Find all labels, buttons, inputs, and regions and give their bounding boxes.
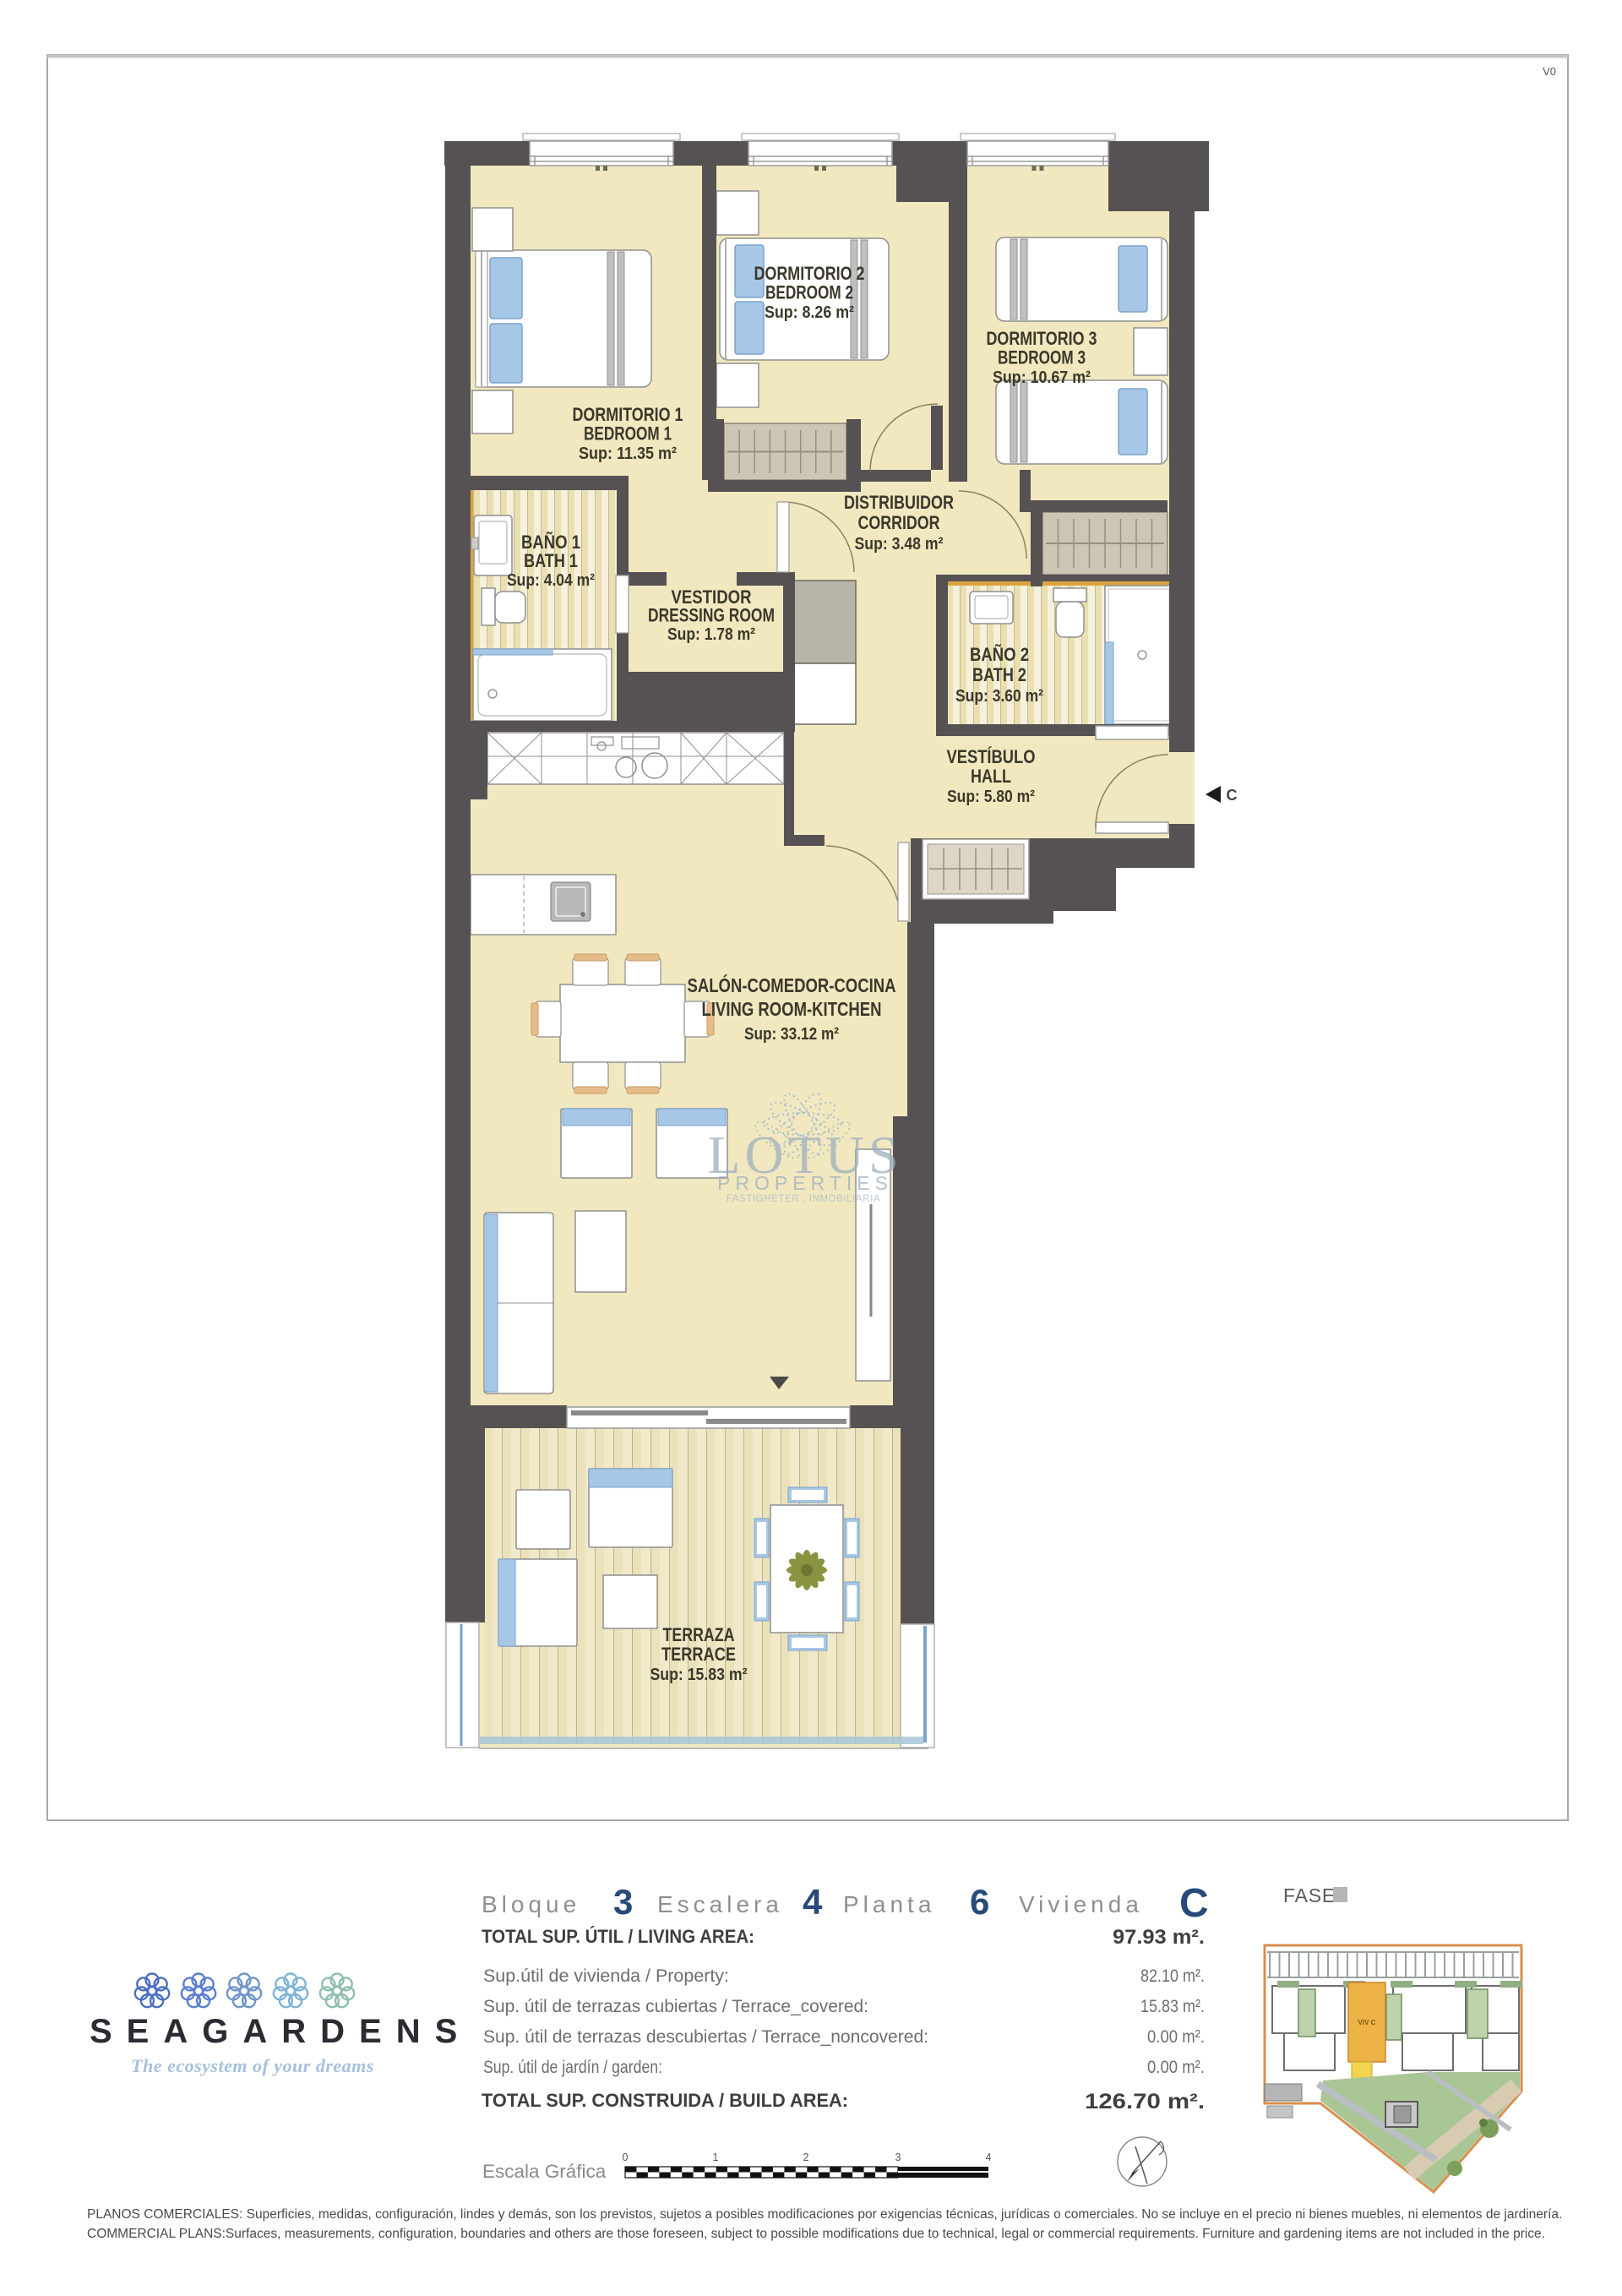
svg-text:0.00 m².: 0.00 m².	[1147, 2058, 1205, 2077]
svg-text:TOTAL SUP. CONSTRUIDA / BUILD: TOTAL SUP. CONSTRUIDA / BUILD AREA:	[482, 2090, 848, 2111]
svg-text:Sup: 33.12 m²: Sup: 33.12 m²	[744, 1025, 839, 1044]
svg-text:3: 3	[613, 1882, 633, 1922]
svg-text:126.70 m².: 126.70 m².	[1085, 2090, 1205, 2113]
svg-text:Sup. útil de jardín / garden:: Sup. útil de jardín / garden:	[483, 2058, 662, 2077]
svg-text:BATH 1: BATH 1	[524, 550, 578, 571]
svg-text:Sup: 15.83 m²: Sup: 15.83 m²	[650, 1666, 748, 1684]
svg-text:C: C	[1227, 787, 1238, 804]
svg-text:Escala Gráfica: Escala Gráfica	[482, 2161, 607, 2182]
svg-text:VIV C: VIV C	[1358, 2019, 1376, 2026]
svg-text:DISTRIBUIDOR: DISTRIBUIDOR	[844, 492, 954, 513]
svg-text:BEDROOM 1: BEDROOM 1	[584, 423, 672, 444]
svg-text:DORMITORIO 1: DORMITORIO 1	[573, 404, 683, 425]
svg-text:TERRAZA: TERRAZA	[663, 1624, 735, 1645]
svg-text:LIVING ROOM-KITCHEN: LIVING ROOM-KITCHEN	[702, 998, 882, 1020]
svg-text:1: 1	[713, 2151, 719, 2163]
svg-text:BATH 2: BATH 2	[972, 664, 1026, 685]
svg-text:PROPERTIES: PROPERTIES	[717, 1172, 893, 1194]
svg-text:DORMITORIO 3: DORMITORIO 3	[987, 328, 1097, 349]
svg-text:CORRIDOR: CORRIDOR	[858, 512, 940, 533]
svg-text:Sup. útil de terrazas cubierta: Sup. útil de terrazas cubiertas / Terrac…	[483, 1997, 868, 2016]
svg-text:TERRACE: TERRACE	[661, 1644, 736, 1665]
svg-text:FASTIGHETER : INMOBILIARIA: FASTIGHETER : INMOBILIARIA	[727, 1194, 880, 1204]
svg-text:VESTÍBULO: VESTÍBULO	[947, 746, 1036, 767]
svg-text:PLANOS COMERCIALES: Superficie: PLANOS COMERCIALES: Superficies, medidas…	[87, 2207, 1562, 2222]
svg-text:SEAGARDENS: SEAGARDENS	[90, 2013, 471, 2050]
svg-text:15.83 m².: 15.83 m².	[1140, 1997, 1205, 2016]
svg-text:Planta: Planta	[843, 1891, 935, 1917]
svg-text:BAÑO 2: BAÑO 2	[970, 644, 1029, 665]
svg-text:C: C	[1179, 1881, 1209, 1926]
svg-text:Sup: 8.26 m²: Sup: 8.26 m²	[765, 303, 854, 322]
svg-text:2: 2	[803, 2151, 809, 2163]
svg-text:3: 3	[895, 2151, 901, 2163]
svg-text:Vivienda: Vivienda	[1019, 1891, 1143, 1917]
svg-text:97.93 m².: 97.93 m².	[1113, 1926, 1205, 1949]
svg-text:0.00 m².: 0.00 m².	[1147, 2027, 1205, 2047]
svg-text:Sup: 10.67 m²: Sup: 10.67 m²	[993, 368, 1091, 387]
svg-text:Sup: 4.04 m²: Sup: 4.04 m²	[507, 571, 595, 590]
svg-text:Sup. útil de terrazas descubie: Sup. útil de terrazas descubiertas / Ter…	[483, 2027, 928, 2047]
svg-text:The ecosystem of your dreams: The ecosystem of your dreams	[131, 2055, 374, 2076]
svg-text:Sup: 3.48 m²: Sup: 3.48 m²	[855, 535, 944, 554]
svg-text:0: 0	[623, 2151, 629, 2163]
svg-text:Escalera: Escalera	[657, 1891, 783, 1917]
svg-text:DORMITORIO 2: DORMITORIO 2	[754, 263, 865, 284]
svg-text:COMMERCIAL PLANS:Surfaces, mea: COMMERCIAL PLANS:Surfaces, measurements,…	[87, 2227, 1545, 2241]
svg-text:TOTAL SUP. ÚTIL / LIVING AREA:: TOTAL SUP. ÚTIL / LIVING AREA:	[482, 1926, 754, 1947]
svg-text:BEDROOM 3: BEDROOM 3	[998, 347, 1086, 368]
svg-text:Sup: 3.60 m²: Sup: 3.60 m²	[955, 687, 1043, 706]
svg-text:Sup: 11.35 m²: Sup: 11.35 m²	[579, 444, 677, 463]
svg-text:V0: V0	[1543, 65, 1556, 78]
svg-text:Sup.útil de vivienda / Propert: Sup.útil de vivienda / Property:	[483, 1966, 729, 1986]
svg-text:SALÓN-COMEDOR-COCINA: SALÓN-COMEDOR-COCINA	[688, 973, 896, 996]
svg-text:Sup: 5.80 m²: Sup: 5.80 m²	[947, 788, 1035, 806]
svg-text:FASE: FASE	[1283, 1884, 1336, 1906]
svg-text:6: 6	[970, 1882, 989, 1922]
svg-text:82.10 m².: 82.10 m².	[1140, 1966, 1205, 1986]
svg-text:Bloque: Bloque	[482, 1891, 580, 1917]
svg-text:4: 4	[803, 1882, 823, 1922]
svg-text:BEDROOM 2: BEDROOM 2	[765, 282, 853, 303]
svg-text:Sup: 1.78 m²: Sup: 1.78 m²	[667, 625, 755, 644]
svg-text:HALL: HALL	[971, 766, 1011, 787]
svg-text:DRESSING ROOM: DRESSING ROOM	[648, 605, 775, 626]
svg-text:4: 4	[986, 2151, 992, 2163]
